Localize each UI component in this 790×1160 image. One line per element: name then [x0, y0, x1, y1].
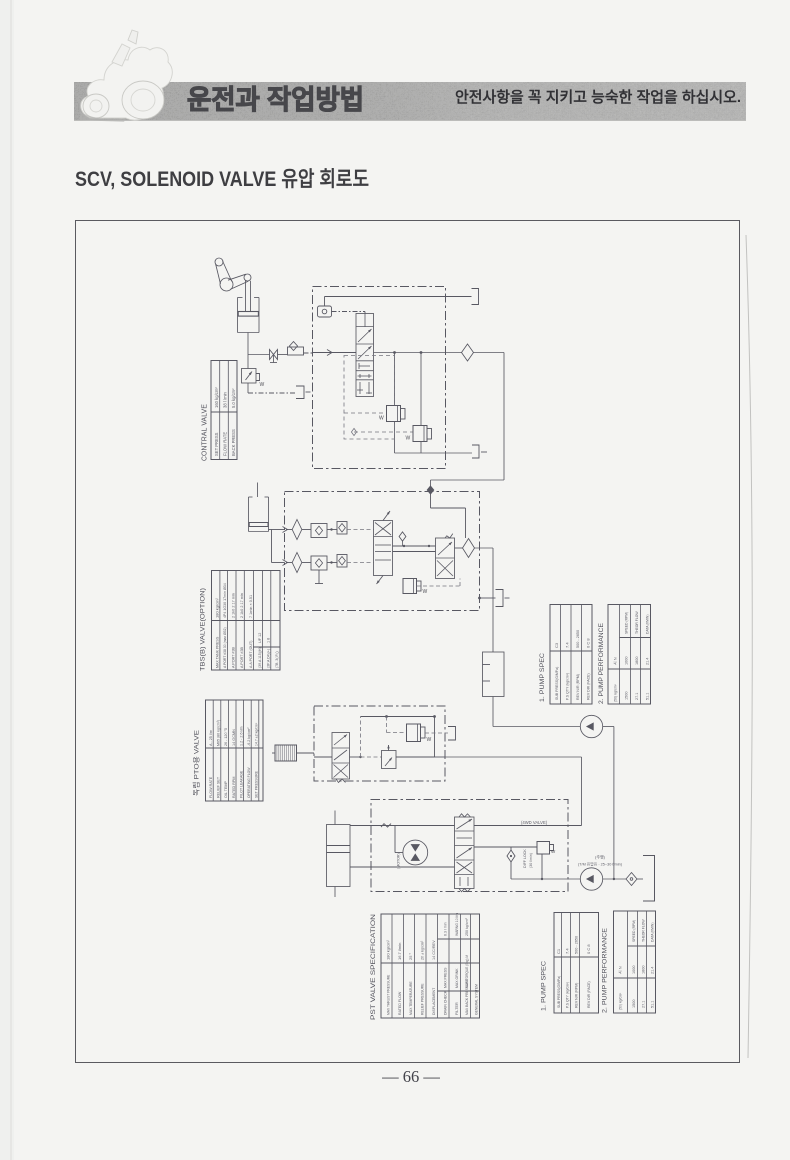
svg-text:독립 PTO용 VALVE: 독립 PTO용 VALVE — [193, 729, 201, 796]
svg-text:1000: 1000 — [625, 657, 629, 665]
svg-text:(T/M 유압유 · 25~30 ℓ/min): (T/M 유압유 · 25~30 ℓ/min) — [578, 862, 623, 867]
svg-text:7.4: 7.4 — [565, 948, 570, 954]
svg-text:-6.2 kg/cm²: -6.2 kg/cm² — [247, 727, 251, 746]
svg-text:TBS(B) VALVE(OPTION): TBS(B) VALVE(OPTION) — [200, 588, 207, 671]
svg-text:2 1k0 2 17 min: 2 1k0 2 17 min — [240, 593, 244, 618]
svg-text:DATA (l/MIN): DATA (l/MIN) — [651, 923, 655, 942]
svg-text:A.A PORT (OUT): A.A PORT (OUT) — [249, 641, 253, 668]
svg-text:C1: C1 — [556, 948, 561, 954]
svg-text:W: W — [406, 436, 411, 442]
svg-text:FILTER: FILTER — [455, 1002, 459, 1015]
svg-text:(50) kg/cm²: (50) kg/cm² — [614, 683, 618, 702]
svg-text:0 C 8: 0 C 8 — [586, 944, 591, 954]
svg-text:500 - 2650: 500 - 2650 — [575, 936, 579, 954]
svg-text:GENERAL SYSTEM: GENERAL SYSTEM — [475, 984, 479, 1015]
svg-text:1800: 1800 — [635, 657, 639, 665]
svg-text:WARNG 10 l/m: WARNG 10 l/m — [455, 913, 459, 936]
svg-text:SPEED (RPM): SPEED (RPM) — [625, 612, 629, 634]
svg-text:MAX BACK PRESSURE: MAX BACK PRESSURE — [465, 978, 469, 1015]
svg-text:REV N/R (RPM): REV N/R (RPM) — [576, 674, 580, 700]
svg-text:RATED RPM: RATED RPM — [232, 777, 236, 798]
svg-text:BACK PRESS: BACK PRESS — [231, 429, 236, 456]
svg-text:MAX THRUST PRESSURE: MAX THRUST PRESSURE — [387, 974, 391, 1015]
svg-text:MAX TANK PRESS: MAX TANK PRESS — [216, 636, 220, 668]
svg-text:16.7 l/min: 16.7 l/min — [397, 943, 402, 960]
svg-text:1 8: 1 8 — [267, 638, 271, 643]
svg-text:21.4: 21.4 — [646, 658, 650, 665]
svg-text:6.3 l min: 6.3 l min — [444, 922, 448, 936]
svg-text:MAX ORINK: MAX ORINK — [455, 968, 459, 988]
svg-text:시 N: 시 N — [618, 966, 623, 974]
svg-text:A - 25 l/m: A - 25 l/m — [209, 730, 213, 746]
svg-text:(4WD VALVE): (4WD VALVE) — [521, 820, 548, 825]
svg-text:500 - 2650: 500 - 2650 — [576, 630, 580, 648]
svg-text:P.S QTY (kg/cm²): P.S QTY (kg/cm²) — [566, 982, 570, 1008]
svg-text:OIL TEMP: OIL TEMP — [224, 780, 228, 798]
svg-text:(3P.A D4)(+): (3P.A D4)(+) — [267, 649, 271, 668]
svg-text:FLOW RATE: FLOW RATE — [223, 432, 228, 456]
svg-text:38 l /min: 38 l /min — [223, 392, 228, 408]
svg-text:RELIEF PRESSURE: RELIEF PRESSURE — [421, 983, 425, 1015]
svg-text:14 GCMN: 14 GCMN — [232, 729, 236, 746]
svg-text:2. PUMP PERFORMANCE: 2. PUMP PERFORMANCE — [598, 623, 605, 704]
svg-text:7 1min × 0.51: 7 1min × 0.51 — [249, 595, 253, 618]
svg-text:1000: 1000 — [632, 966, 636, 974]
svg-text:FLOW RATE: FLOW RATE — [209, 776, 213, 798]
svg-text:14 CC/REV: 14 CC/REV — [432, 940, 436, 960]
svg-text:RELIEF SET: RELIEF SET — [217, 776, 221, 798]
svg-text:(주행): (주행) — [595, 854, 606, 860]
svg-text:MAX TEMPERATURE: MAX TEMPERATURE — [409, 981, 413, 1015]
svg-text:180 kg/cm²: 180 kg/cm² — [215, 598, 220, 618]
svg-text:51.1: 51.1 — [646, 693, 650, 700]
svg-text:P.S QTY (kg/cm²): P.S QTY (kg/cm²) — [566, 673, 570, 700]
svg-text:160 kg/cm²: 160 kg/cm² — [214, 387, 219, 408]
svg-text:14.7 ±2 kg/cm²: 14.7 ±2 kg/cm² — [255, 722, 259, 746]
svg-text:UF 12: UF 12 — [258, 633, 262, 643]
svg-text:250 kg/cm²: 250 kg/cm² — [465, 917, 469, 936]
svg-text:(50) kg/cm²: (50) kg/cm² — [619, 992, 623, 1010]
svg-text:(7B. 3(.P.(): (7B. 3(.P.() — [275, 651, 279, 668]
svg-text:PST VALVE SPECIFICATION: PST VALVE SPECIFICATION — [370, 914, 377, 1020]
svg-text:SUB PRESS(G/MPa): SUB PRESS(G/MPa) — [555, 667, 559, 700]
svg-text:SPEED (RPM): SPEED (RPM) — [632, 920, 636, 942]
svg-text:— 66 —: — 66 — — [381, 1067, 440, 1086]
svg-text:(MOTOR): (MOTOR) — [397, 853, 401, 869]
svg-text:REV DIR (FACE): REV DIR (FACE) — [587, 981, 591, 1008]
svg-text:5.0 kg/cm²: 5.0 kg/cm² — [231, 388, 236, 408]
svg-text:27.1: 27.1 — [642, 1001, 646, 1008]
svg-text:20 ± kg/cm²: 20 ± kg/cm² — [421, 940, 425, 960]
svg-text:C3: C3 — [554, 642, 559, 648]
svg-text:7.4: 7.4 — [565, 642, 570, 648]
svg-text:시 N: 시 N — [613, 657, 618, 665]
svg-text:27.1: 27.1 — [635, 693, 639, 700]
svg-text:1800: 1800 — [642, 966, 646, 974]
svg-text:CONTRAL VALVE: CONTRAL VALVE — [202, 404, 209, 461]
svg-text:1500: 1500 — [625, 692, 629, 700]
svg-text:2. PUMP PERFORMANCE: 2. PUMP PERFORMANCE — [602, 928, 609, 1013]
svg-text:SCV, SOLENOID VALVE 유압 회로도: SCV, SOLENOID VALVE 유압 회로도 — [75, 168, 369, 191]
svg-text:A PORT #3B: A PORT #3B — [240, 646, 244, 668]
svg-text:W: W — [379, 416, 384, 422]
svg-text:DATA (l/MIN): DATA (l/MIN) — [646, 615, 650, 634]
svg-text:REV N/R (RPM): REV N/R (RPM) — [575, 983, 579, 1008]
svg-text:26 - 120 °5: 26 - 120 °5 — [224, 728, 228, 746]
svg-text:1500: 1500 — [632, 1000, 636, 1008]
svg-text:25 °: 25 ° — [408, 952, 413, 960]
svg-text:SUB PRESS(G/MPa): SUB PRESS(G/MPa) — [557, 976, 561, 1008]
svg-text:SET PRESS: SET PRESS — [214, 432, 219, 456]
svg-text:1. PUMP SPEC: 1. PUMP SPEC — [539, 653, 546, 702]
svg-text:운전과 작업방법: 운전과 작업방법 — [187, 85, 364, 115]
svg-text:REV DIR (FACE): REV DIR (FACE) — [587, 673, 591, 700]
svg-text:180 kg/cm²: 180 kg/cm² — [386, 940, 391, 960]
svg-text:21.4: 21.4 — [651, 967, 655, 974]
svg-text:RATED FLOW: RATED FLOW — [398, 991, 402, 1015]
svg-text:OPERATING FLOW: OPERATING FLOW — [247, 767, 251, 798]
svg-text:THEOR FLOW: THEOR FLOW — [642, 919, 646, 942]
svg-text:4P4 1G30 17min Ø34: 4P4 1G30 17min Ø34 — [223, 583, 227, 618]
svg-text:DRAIN CHECK: DRAIN CHECK — [444, 990, 448, 1015]
svg-text:DIFF LOCK: DIFF LOCK — [523, 849, 527, 868]
svg-text:(30 l/min): (30 l/min) — [529, 853, 533, 868]
svg-text:51.1: 51.1 — [651, 1001, 655, 1008]
svg-text:(39.A 115)(H): (39.A 115)(H) — [258, 647, 262, 668]
svg-text:THEOR FLOW: THEOR FLOW — [635, 611, 639, 634]
svg-text:M65 (80 kg/cm²): M65 (80 kg/cm²) — [217, 720, 221, 746]
svg-text:1.2 - 2.6 l/m: 1.2 - 2.6 l/m — [239, 727, 243, 746]
svg-text:DISPLACEMENT: DISPLACEMENT — [432, 987, 436, 1015]
svg-text:W: W — [260, 382, 265, 388]
svg-text:PILOT LEAKAGE: PILOT LEAKAGE — [239, 770, 243, 798]
svg-text:MAX PRESS: MAX PRESS — [444, 967, 448, 988]
svg-text:안전사항을 꼭 지키고 능숙한 작업을 하십시오.: 안전사항을 꼭 지키고 능숙한 작업을 하십시오. — [455, 88, 741, 106]
svg-text:W: W — [427, 737, 432, 743]
svg-text:0 C 8: 0 C 8 — [586, 638, 591, 648]
svg-text:1. PUMP SPEC: 1. PUMP SPEC — [541, 961, 548, 1011]
svg-text:2 1k0 2 17 min: 2 1k0 2 17 min — [232, 593, 236, 618]
svg-text:W: W — [423, 589, 428, 595]
svg-text:SET PRESSURE: SET PRESSURE — [255, 770, 259, 798]
svg-text:A PORT #3B: A PORT #3B — [232, 646, 236, 668]
svg-text:A PORT #38 30 (max Ø32): A PORT #38 30 (max Ø32) — [223, 627, 227, 668]
